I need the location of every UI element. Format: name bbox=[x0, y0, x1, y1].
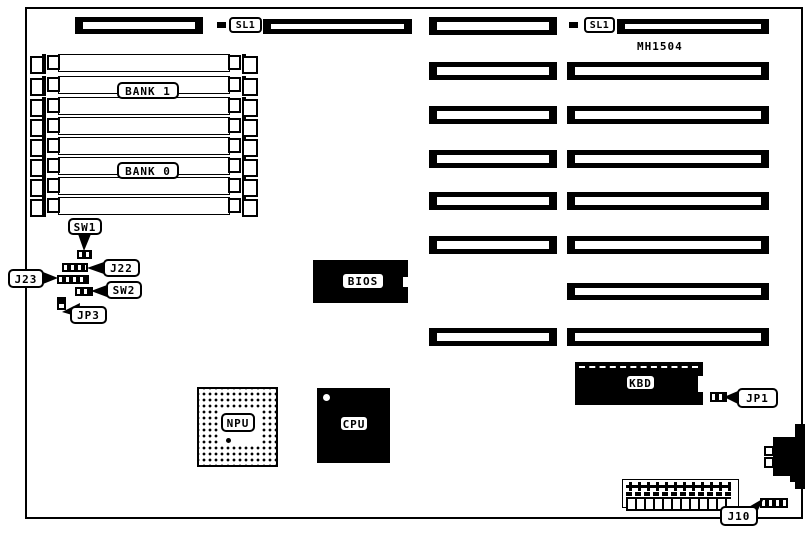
bank0-label: BANK 0 bbox=[117, 162, 179, 179]
sw2-label: SW2 bbox=[106, 281, 142, 299]
cpu-label: CPU bbox=[339, 415, 369, 432]
sw1-label: SW1 bbox=[68, 218, 102, 235]
bank1-label: BANK 1 bbox=[117, 82, 179, 99]
bios-label: BIOS bbox=[341, 272, 385, 290]
j23-label: J23 bbox=[8, 269, 44, 288]
jp1-pointer bbox=[724, 391, 738, 404]
sw1-pointer bbox=[78, 234, 91, 251]
sw2-pointer bbox=[91, 285, 107, 297]
motherboard-diagram: SL1 SL1 MH1504 bbox=[0, 0, 810, 533]
sl1-label-left: SL1 bbox=[229, 17, 262, 33]
j22-label: J22 bbox=[103, 259, 140, 277]
kbd-label: KBD bbox=[625, 374, 656, 391]
sl1-label-right: SL1 bbox=[584, 17, 615, 33]
npu-label: NPU bbox=[221, 413, 255, 432]
jp1-label: JP1 bbox=[737, 388, 778, 408]
j23-pointer bbox=[43, 272, 58, 284]
j22-pointer bbox=[87, 262, 104, 274]
jp3-label: JP3 bbox=[70, 306, 107, 324]
j10-label: J10 bbox=[720, 506, 758, 526]
